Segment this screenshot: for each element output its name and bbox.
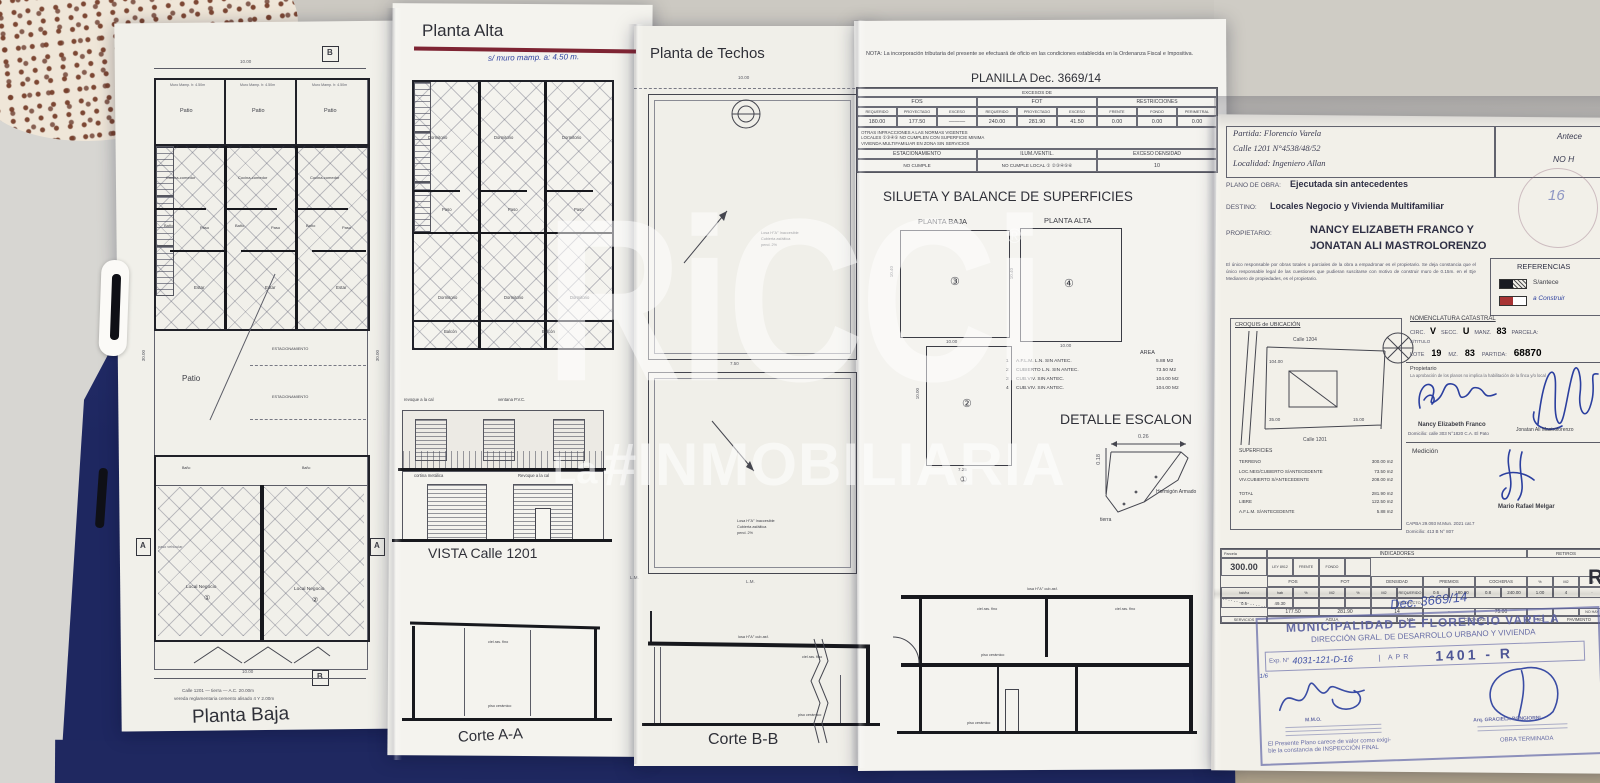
alta-building: Dormitorio Dormitorio Dormitorio Paso Pa… — [412, 80, 614, 350]
dim-label: 10.00 — [946, 340, 957, 345]
stair — [156, 246, 174, 296]
wall — [997, 667, 999, 731]
area-desc: A.F.L.M. L.N. SIN ANTEC. — [1016, 359, 1156, 364]
wall — [464, 628, 465, 716]
area-row: 2 CUBIERTO L.N. SIN ANTEC. 73.50 M2 — [1006, 368, 1214, 373]
cell: 0.00 — [1097, 116, 1137, 127]
wall — [414, 232, 612, 234]
two-storey-section: losa H°A° cub.asf. ciel.ras. fino ciel.r… — [897, 585, 1197, 745]
roof-note: Cubierta asfáltica — [737, 525, 766, 529]
area-row: 3 CUB.VIV. SIN ANTEC. 104.00 M2 — [1006, 377, 1214, 382]
mid-slab — [901, 663, 1193, 667]
room-label: Baño — [182, 467, 190, 471]
wall — [224, 80, 226, 146]
room-label: Local Negocio — [186, 585, 216, 590]
silueta-pa-label: PLANTA ALTA — [1044, 217, 1092, 225]
room-label: Dormitorio — [562, 136, 581, 141]
wall — [594, 628, 597, 718]
note-label: revoque a la cal — [404, 398, 434, 403]
area-num: 3 — [1006, 377, 1016, 382]
room-label: Dormitorio — [570, 296, 589, 301]
room-label: ESTACIONAMIENTO — [272, 395, 308, 399]
note-label: ciel.ras. fino — [488, 640, 508, 644]
planilla-title: PLANILLA Dec. 3669/14 — [856, 72, 1216, 85]
section-title: Corte B-B — [708, 731, 778, 749]
crease-horizontal — [1214, 588, 1600, 600]
stair — [414, 82, 431, 132]
photo-of-architectural-plan: 10.00 30.00 30.00 Muro Mamp. h: 4.50m Mu… — [0, 0, 1600, 783]
note-label: piso cerámico — [488, 704, 511, 708]
wall — [295, 146, 298, 329]
room-label: Baño — [235, 224, 244, 228]
dim-label: 10.40 — [1010, 268, 1015, 279]
wall — [547, 190, 593, 192]
wall — [227, 208, 277, 210]
area-num: 1 — [1006, 359, 1016, 364]
wall — [481, 190, 527, 192]
wall — [170, 250, 224, 252]
dim-label: 7.25 — [958, 468, 967, 473]
roof-note: Losa H°A° Inaccesible — [761, 231, 799, 235]
dim-30: 30.00 — [376, 350, 381, 361]
room-label: Paso — [271, 226, 280, 230]
dim-line — [154, 678, 366, 679]
circled-number: ② — [312, 597, 318, 605]
room-label: Muro Mamp. h: 4.50m — [312, 84, 347, 88]
caption: Calle 1201 — tierra — A.C. 20.00m — [182, 688, 254, 693]
dim-label: 10.00 — [738, 76, 749, 81]
cell: 10 — [1097, 159, 1217, 172]
patio-strip: Muro Mamp. h: 4.50m Muro Mamp. h: 4.50m … — [154, 78, 370, 148]
cell: EXCESO — [937, 107, 977, 116]
cell: 180.00 — [857, 116, 897, 127]
cell: EXCESO DENSIDAD — [1097, 149, 1217, 159]
wall — [295, 80, 297, 146]
room-label: Patio — [252, 108, 265, 114]
material-label: tierra — [1100, 518, 1111, 524]
wall — [478, 82, 481, 348]
section-marker-b: B — [322, 46, 339, 62]
cell: FOT — [977, 97, 1097, 107]
area-desc: CUB.VIV. SIN ANTEC. — [1016, 386, 1156, 391]
stair — [156, 196, 174, 246]
marker-letter: B — [327, 49, 333, 58]
infractions-cell: OTRAS INFRACCIONES A LAS NORMAS VIGENTES… — [857, 127, 1217, 149]
roof-note: Cubierta asfáltica — [761, 237, 790, 241]
roof-2: Losa H°A° Inaccesible Cubierta asfáltica… — [648, 372, 857, 574]
cell: 0.00 — [1137, 116, 1177, 127]
roof-note: Losa H°A° Inaccesible — [737, 519, 775, 523]
room-label: Paso — [442, 208, 452, 213]
room-label: Patio — [324, 108, 337, 114]
cell: NO CUMPLE — [857, 159, 977, 172]
slope-arrow — [704, 413, 764, 479]
room-label: paso vehicular — [158, 545, 182, 549]
note-label: ciel.ras. fino — [1115, 607, 1135, 611]
room-label: Dormitorio — [494, 136, 513, 141]
dim-label: 10.00 — [240, 60, 251, 65]
dim-label: 10.00 — [916, 388, 921, 399]
note-label: piso cerámico — [967, 721, 990, 725]
cell: NO CUMPLE LOCAL ① ②③④⑤⑥ — [977, 159, 1097, 172]
ground-line — [897, 731, 1197, 734]
marker-letter: A — [374, 542, 380, 551]
planilla-table: EXCESOS DE FOS FOT RESTRICCIONES REQUERI… — [856, 87, 1218, 173]
roof-note: pend. 2% — [737, 531, 753, 535]
cell: 41.50 — [1057, 116, 1097, 127]
note-label: ventana P.V.C. — [498, 398, 525, 403]
cell: EXCESO — [1057, 107, 1097, 116]
circled-number: ① — [204, 595, 210, 603]
silueta-title: SILUETA Y BALANCE DE SUPERFICIES — [883, 190, 1133, 205]
wall — [840, 675, 841, 723]
wall — [260, 485, 264, 640]
wall — [298, 208, 348, 210]
cell: 177.50 — [897, 116, 937, 127]
handwritten-note: s/ muro mamp. a: 4.50 m. — [488, 53, 579, 63]
caption: vereda reglamentaria cemento alisado 4 Y… — [174, 696, 274, 701]
room-label: Patio — [182, 375, 200, 384]
cell: 240.00 — [977, 116, 1017, 127]
circled-number: ① — [960, 476, 967, 485]
room-label: Cocina-comedor — [310, 176, 339, 180]
cell: PROYECTADO — [1017, 107, 1057, 116]
roof-1: Losa H°A° Inaccesible Cubierta asfáltica… — [648, 94, 857, 360]
material-label: Hormigón Armado — [1156, 490, 1196, 496]
area-val: 5.88 M2 — [1156, 359, 1173, 364]
wall — [224, 146, 227, 329]
door — [1005, 689, 1019, 733]
room-label: Muro Mamp. h: 4.50m — [170, 84, 205, 88]
door-arc — [891, 633, 921, 665]
roof-slab — [648, 641, 870, 648]
break-symbol — [806, 637, 832, 747]
dim-label: 0.18 — [1096, 454, 1102, 465]
detalle-escalon: DETALLE ESCALON 0.26 0.18 Hormigón Armad… — [1038, 402, 1213, 537]
planta-techos-plan: Planta de Techos 10.00 Losa H°A° Inacces… — [626, 28, 874, 588]
dim-label: 10.00 — [1060, 344, 1071, 349]
silueta-pb-label: PLANTA BAJA — [918, 218, 967, 226]
area-row: 1 A.F.L.M. L.N. SIN ANTEC. 5.88 M2 — [1006, 359, 1214, 364]
wall — [312, 250, 366, 252]
railing — [403, 451, 603, 469]
cell: FOS — [857, 97, 977, 107]
wall — [654, 647, 655, 723]
locales-block: Baño Baño Local Negocio ① Local Negocio … — [154, 455, 370, 642]
section-marker-a: A — [370, 538, 385, 556]
room-label: Baño — [302, 467, 310, 471]
wall — [1045, 597, 1048, 657]
dim-label: 10.00 — [242, 670, 253, 675]
cell: PERIMETRAL — [1177, 107, 1217, 116]
floor-line — [402, 718, 612, 721]
dim-line — [154, 68, 366, 69]
area-val: 104.00 M2 — [1156, 377, 1179, 382]
room-label: Dormitorio — [438, 296, 457, 301]
wall — [241, 250, 295, 252]
lm-line — [634, 88, 870, 89]
room-label: Estar — [194, 286, 205, 291]
room-label: Balcón — [542, 330, 555, 335]
fold-shadow-right-top — [1214, 96, 1600, 130]
cell: FONDO — [1137, 107, 1177, 116]
ground-line — [392, 539, 612, 542]
planta-alta-plan: Planta Alta s/ muro mamp. a: 4.50 m. Dor… — [396, 16, 636, 396]
stair — [156, 146, 174, 196]
section-title: Corte A-A — [458, 726, 524, 746]
area-row: 4 CUB.VIV. SIN ANTEC. 104.00 M2 — [1006, 386, 1214, 391]
floor-line — [642, 723, 880, 726]
area-num: 4 — [1006, 386, 1016, 391]
wall — [414, 190, 460, 192]
wall — [866, 647, 870, 725]
cell: ——— — [937, 116, 977, 127]
patio-area: Patio ESTACIONAMIENTO ESTACIONAMIENTO — [154, 327, 366, 455]
wall — [660, 647, 661, 723]
area-val: 73.50 M2 — [1156, 368, 1176, 373]
balcony-line — [414, 320, 612, 322]
cell: FRENTE — [1097, 107, 1137, 116]
room-label: Cocina-comedor — [238, 176, 267, 180]
section-marker-a: A — [136, 538, 151, 556]
cell: ILUM./VENTIL. — [977, 149, 1097, 159]
room-label: Paso — [200, 226, 209, 230]
roof-slab — [410, 622, 600, 630]
area-desc: CUB.VIV. SIN ANTEC. — [1016, 377, 1156, 382]
paper-leaf-5 — [1211, 114, 1600, 773]
infraction-line: VIVIENDA MULTIFAMILIAR EN ZONA SIN SERVI… — [861, 141, 969, 146]
room-label: Cocina-comedor — [166, 176, 195, 180]
view-title: VISTA Calle 1201 — [428, 546, 537, 561]
cell: 281.90 — [1017, 116, 1057, 127]
step-drawing — [1066, 432, 1206, 532]
parapet — [650, 611, 652, 645]
room-label: Baño — [164, 224, 173, 228]
room-label: Dormitorio — [504, 296, 523, 301]
corte-aa-section: ciel.ras. fino piso cerámico Corte A-A — [402, 598, 612, 748]
room-label: Estar — [336, 286, 347, 291]
note-label: piso cerámico — [981, 653, 1004, 657]
wall — [1075, 667, 1078, 731]
corte-bb-section: losa H°A° cub.asf. ciel.ras. fino piso c… — [642, 585, 1202, 760]
cell: REQUERIDO — [977, 107, 1017, 116]
wall — [412, 626, 415, 718]
room-label: Paso — [508, 208, 518, 213]
note-label: losa H°A° cub.asf. — [1027, 587, 1058, 591]
roof-note: pend. 2% — [761, 243, 777, 247]
dim-label: 10.40 — [890, 266, 895, 277]
dim-label: 7.50 — [730, 362, 739, 367]
wall — [544, 82, 547, 348]
dim-30: 30.00 — [142, 350, 147, 361]
marker-letter: A — [140, 542, 146, 551]
tank-detail — [729, 97, 763, 131]
nota-text: NOTA: La incorporación tributaria del pr… — [866, 52, 1193, 58]
facade-upper — [402, 410, 604, 470]
room-label: Paso — [342, 226, 351, 230]
room-label: Dormitorio — [428, 136, 447, 141]
slope-arrow — [679, 203, 739, 269]
circled-number: ④ — [1064, 278, 1074, 290]
dim-label: 0.26 — [1138, 434, 1149, 440]
room-label: ESTACIONAMIENTO — [272, 347, 308, 351]
circled-number: ② — [962, 398, 972, 410]
roof-triangles — [192, 642, 332, 666]
area-title: AREA — [1140, 350, 1155, 356]
area-desc: CUBIERTO L.N. SIN ANTEC. — [1016, 368, 1156, 373]
room-label: Patio — [180, 108, 193, 114]
plan-title: Planta de Techos — [650, 46, 765, 63]
circled-number: ③ — [950, 276, 960, 288]
wall — [1189, 597, 1193, 733]
area-val: 104.00 M2 — [1156, 386, 1179, 391]
cell: EXCESOS DE — [857, 88, 1217, 97]
roller-door — [427, 484, 487, 540]
parking-divider — [250, 365, 366, 366]
vista-elevation: revoque a la cal ventana P.V.C. cortina … — [398, 396, 618, 566]
cell: ESTACIONAMIENTO — [857, 149, 977, 159]
cell: 0.00 — [1177, 116, 1217, 127]
plan-title: Planta Baja — [192, 704, 290, 728]
detail-title: DETALLE ESCALON — [1060, 412, 1192, 427]
room-label: Paso — [574, 208, 584, 213]
wall — [530, 630, 531, 716]
room-label: Muro Mamp. h: 4.50m — [240, 84, 275, 88]
room-label: Local Negocio — [294, 587, 324, 592]
plan-title: Planta Alta — [422, 22, 503, 41]
note-label: ciel.ras. fino — [977, 607, 997, 611]
area-num: 2 — [1006, 368, 1016, 373]
parking-divider — [250, 419, 366, 420]
cell: RESTRICCIONES — [1097, 97, 1217, 107]
room-label: Balcón — [444, 330, 457, 335]
room-label: Baño — [306, 224, 315, 228]
cell: PROYECTADO — [897, 107, 937, 116]
wall — [156, 208, 206, 210]
planta-baja-plan: 10.00 30.00 30.00 Muro Mamp. h: 4.50m Mu… — [140, 30, 390, 760]
facade-lower — [402, 471, 604, 541]
cell: REQUERIDO — [857, 107, 897, 116]
note-label: losa H°A° cub.asf. — [738, 635, 769, 639]
lm-label: L.M. — [630, 576, 639, 581]
door — [535, 508, 551, 540]
